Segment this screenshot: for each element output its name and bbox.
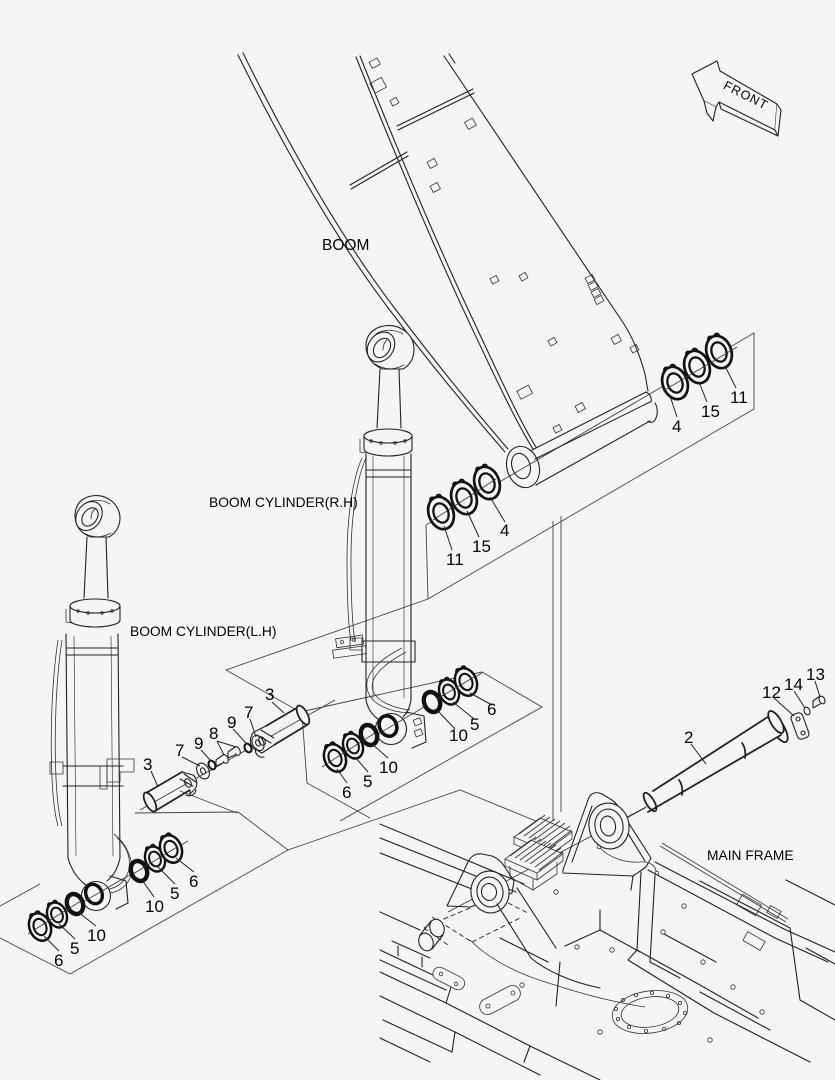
svg-text:4: 4 [500, 521, 509, 540]
svg-text:5: 5 [70, 939, 79, 958]
svg-text:7: 7 [244, 703, 253, 722]
svg-text:BOOM CYLINDER(R.H): BOOM CYLINDER(R.H) [209, 495, 358, 510]
svg-text:9: 9 [227, 713, 236, 732]
svg-text:5: 5 [470, 715, 479, 734]
svg-text:9: 9 [194, 734, 203, 753]
svg-text:11: 11 [730, 388, 748, 407]
svg-text:5: 5 [363, 772, 372, 791]
svg-text:BOOM: BOOM [322, 237, 369, 254]
svg-text:2: 2 [684, 728, 693, 747]
svg-text:8: 8 [209, 724, 218, 743]
svg-text:3: 3 [143, 755, 152, 774]
svg-text:11: 11 [446, 550, 464, 569]
svg-text:6: 6 [342, 783, 351, 802]
svg-text:7: 7 [175, 741, 184, 760]
svg-text:10: 10 [87, 926, 106, 945]
svg-text:10: 10 [379, 758, 398, 777]
svg-text:4: 4 [672, 417, 681, 436]
svg-text:10: 10 [145, 897, 164, 916]
svg-text:6: 6 [487, 700, 496, 719]
svg-text:14: 14 [784, 675, 803, 694]
svg-text:MAIN FRAME: MAIN FRAME [707, 848, 794, 863]
svg-text:6: 6 [189, 872, 198, 891]
svg-text:13: 13 [806, 665, 825, 684]
svg-text:3: 3 [265, 685, 274, 704]
svg-text:6: 6 [54, 951, 63, 970]
svg-text:5: 5 [170, 884, 179, 903]
svg-text:10: 10 [449, 726, 468, 745]
svg-text:15: 15 [701, 402, 720, 421]
svg-text:15: 15 [472, 537, 491, 556]
svg-text:BOOM CYLINDER(L.H): BOOM CYLINDER(L.H) [130, 624, 276, 639]
svg-text:12: 12 [762, 683, 781, 702]
